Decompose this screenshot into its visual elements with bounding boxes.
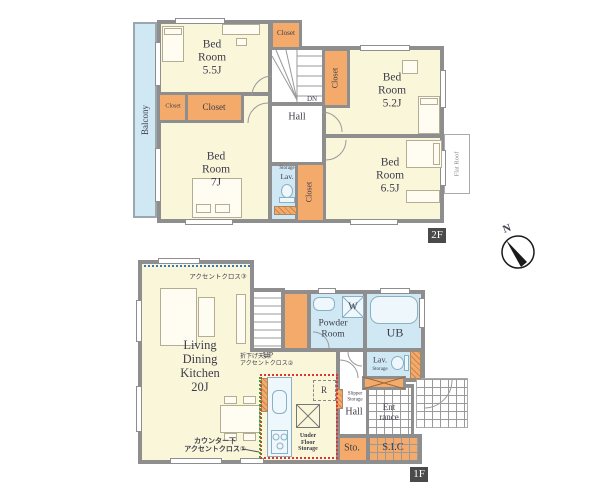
entrance-label: Ent rance [379,402,398,422]
closet-7-large-label: Closet [202,102,225,112]
dining-table [220,405,260,433]
dining-chair [224,396,237,404]
window [440,70,446,108]
window [185,219,233,225]
lavatory-2f-label: Lav. [280,173,293,181]
bedroom-5-5-label: Bed Room 5.5J [198,39,226,78]
desk-5-5 [222,24,260,35]
window [350,219,398,225]
toilet-tank-1f [404,355,409,371]
hall-2f-label: Hall [288,111,305,122]
window [419,298,425,328]
compass-north-label: N [501,222,513,236]
hall-1f-label: Hall [345,406,362,417]
window [175,18,225,24]
bathtub [370,296,418,324]
stool-5-5 [236,38,247,46]
porch [416,378,468,428]
towel-shelf-2f [274,206,297,215]
window [360,45,410,51]
coffee-table [198,297,215,337]
pillow [196,204,211,213]
bedroom-5-2-label: Bed Room 5.2J [378,72,406,111]
shoe-in-closet-label: S.I.C [382,442,404,454]
window [380,288,410,294]
balcony-label: Balcony [140,105,150,135]
closet-7-small-label: Closet [165,104,180,111]
flat-roof-label: Flat Roof [453,152,460,177]
window-sliding-door [170,458,222,464]
closet-5-2-label: Closet [332,68,341,88]
compass-icon [502,236,534,268]
powder-room-label: Powder Room [318,318,347,339]
floor-plan-canvas: Balcony Bed Room 5.5J Bed Room 7J Bed Ro… [0,0,600,496]
lav-storage-1f-label: Storage [372,367,387,373]
accent-cloth-3-label: アクセントクロス③ [189,273,247,280]
accent-cloth-1-line [259,377,261,458]
powder-sink [313,297,335,311]
stairs-up-label: UP [263,352,273,361]
pillow [420,98,438,105]
accent-cloth-3-line [144,265,250,267]
lavatory-1f-label: Lav. [373,357,387,366]
meter-box [362,376,406,390]
window [136,300,142,342]
window [158,258,200,264]
floor2-badge: 2F [428,228,446,243]
floor1-badge: 1F [410,467,428,482]
closet-6-5-label: Closet [306,182,315,202]
stairs-1f [250,288,285,352]
toilet-bowl-2f [281,184,293,198]
closet-top-label: Closet [277,30,295,38]
under-floor-storage-label: Under Floor Storage [298,433,318,453]
toilet-tank-2f [279,197,295,203]
accent-cloth-1-label: カウンター下 アクセントクロス① [184,438,246,454]
refrigerator-label: R [321,385,327,395]
balcony-door [155,42,161,86]
toilet-bowl-1f [391,356,404,370]
pillow [215,204,230,213]
storage-1f-label: Sto. [344,442,360,453]
stairs-2f [268,46,326,106]
bedroom-7-label: Bed Room 7J [202,151,230,190]
ldk-label: Living Dining Kitchen 20J [180,338,220,394]
stairs-dn-label: DN [307,96,317,104]
dining-chair [243,396,256,404]
desk-6-5 [406,190,440,203]
slipper-storage-label: Slipper Storage [347,391,362,402]
pillow [433,143,440,165]
lav-shelf-1f [410,351,421,379]
balcony-door [155,148,161,202]
window [318,288,336,294]
unit-bath-label: UB [387,326,404,339]
washer-label: W [348,301,357,312]
bedroom-6-5-label: Bed Room 6.5J [376,157,404,196]
pillow [164,28,182,35]
window [136,386,142,432]
tv-board [236,294,246,344]
